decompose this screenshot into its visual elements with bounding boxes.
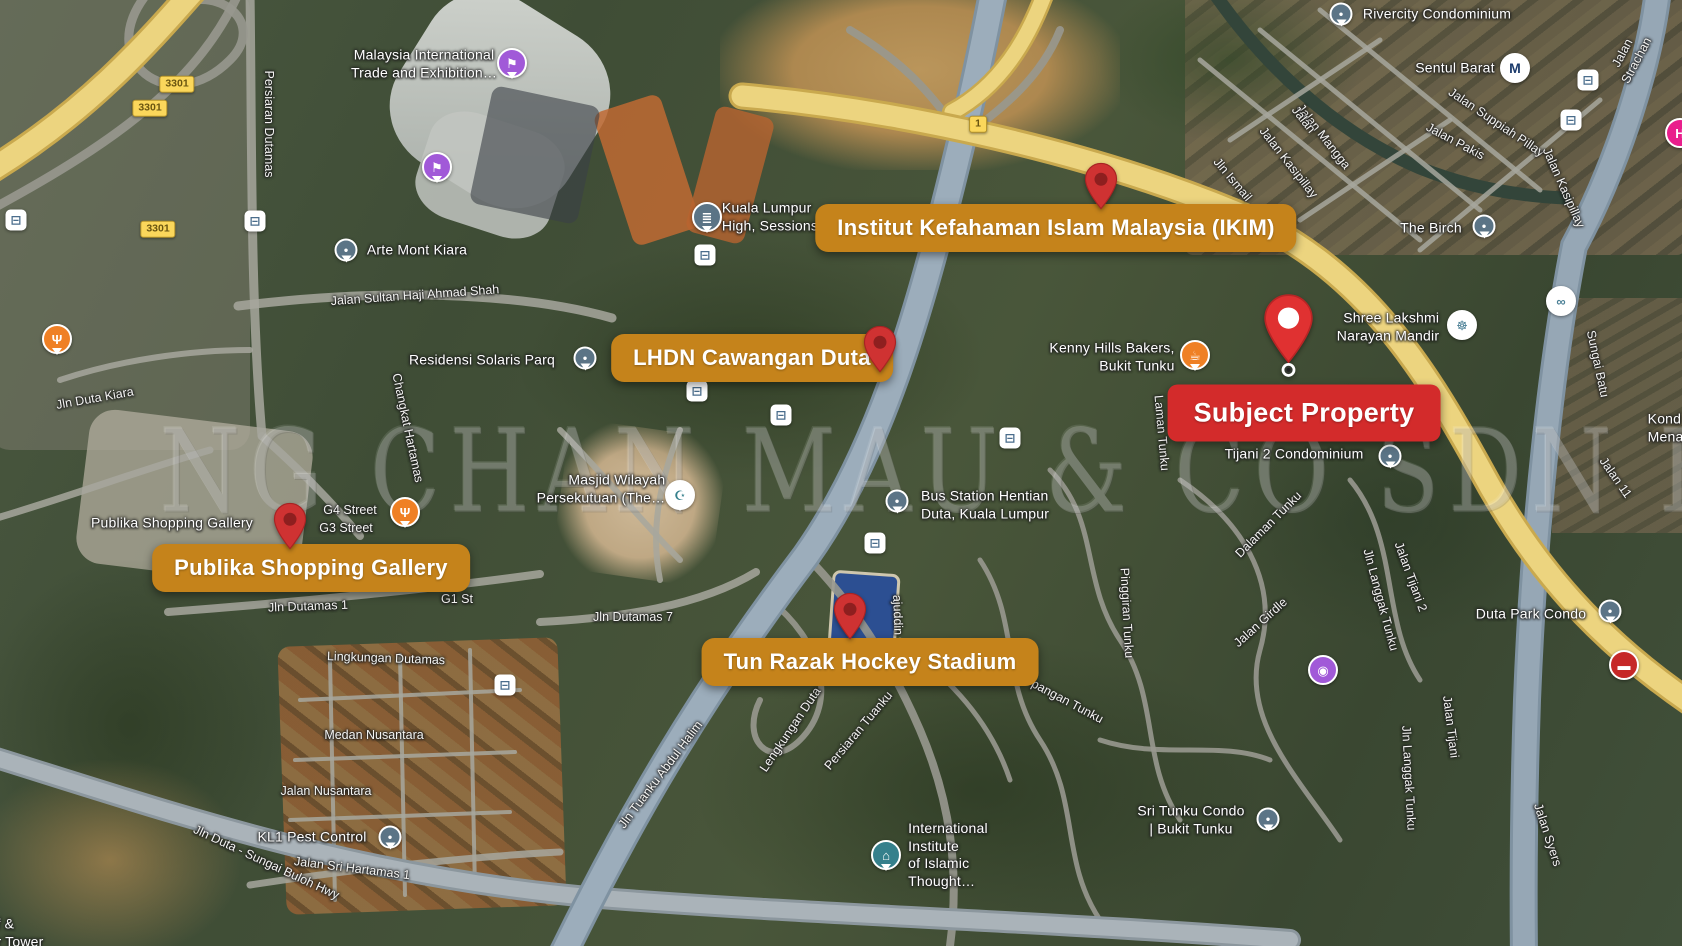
subject-property-pin: [1263, 293, 1314, 378]
callout-pin-publika-shopping-gallery: [273, 502, 307, 550]
callout-tun-razak-hockey-stadium: Tun Razak Hockey Stadium: [702, 638, 1039, 686]
satellite-map[interactable]: NG CHAN MAU & CO SDN BHD Malaysia Intern…: [0, 0, 1682, 946]
callout-institut-kefahaman-islam-malaysia-ikim: Institut Kefahaman Islam Malaysia (IKIM): [815, 204, 1296, 252]
callout-subject-property: Subject Property: [1168, 385, 1441, 442]
callout-lhdn-cawangan-duta: LHDN Cawangan Duta: [611, 334, 893, 382]
callout-pin-institut-kefahaman-islam-malaysia-ikim: [1084, 162, 1118, 210]
callout-pin-lhdn-cawangan-duta: [863, 325, 897, 373]
callouts-layer: Institut Kefahaman Islam Malaysia (IKIM)…: [0, 0, 1682, 946]
callout-pin-tun-razak-hockey-stadium: [833, 592, 867, 640]
callout-publika-shopping-gallery: Publika Shopping Gallery: [152, 544, 470, 592]
